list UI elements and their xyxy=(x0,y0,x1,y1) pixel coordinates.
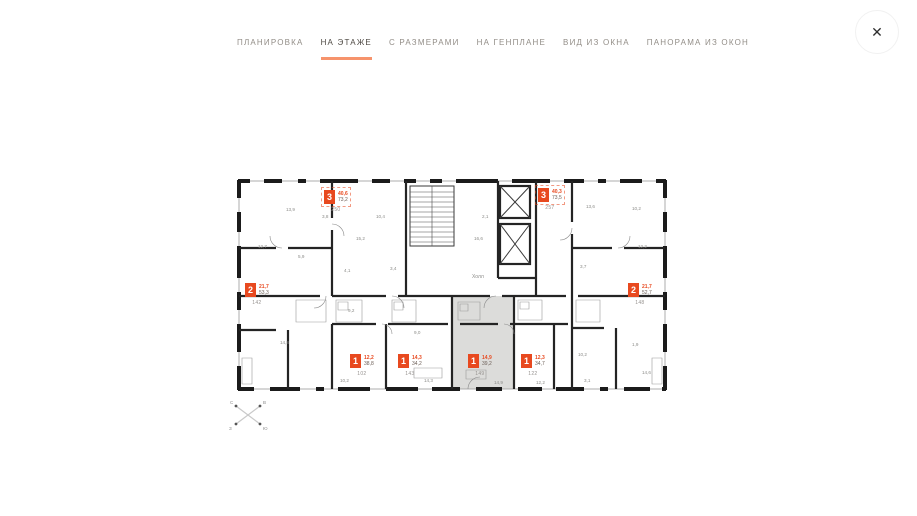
room-area-label: 9,2 xyxy=(348,308,355,313)
badge-room-count: 1 xyxy=(350,354,361,368)
badge-unit-number: 149 xyxy=(475,371,484,377)
badge-room-count: 2 xyxy=(245,283,256,297)
room-area-label: 10,4 xyxy=(376,214,385,219)
badge-unit-number: 122 xyxy=(528,371,537,377)
tab-planirovka[interactable]: ПЛАНИРОВКА xyxy=(237,38,304,60)
close-icon: ✕ xyxy=(871,24,883,41)
room-area-label: 12,2 xyxy=(536,380,545,385)
room-area-label: 4,1 xyxy=(344,268,351,273)
apartment-badge-250[interactable]: 340,673,2250 xyxy=(324,190,348,213)
apartment-badge-148[interactable]: 221,752,7148 xyxy=(628,283,652,306)
badge-rooms-and-areas: 114,334,2 xyxy=(398,354,422,368)
room-area-label: 15,2 xyxy=(356,236,365,241)
badge-area-total: 73,2 xyxy=(338,197,348,204)
floor-plan-drawing: Холл 13,93,812,75,915,24,110,43,416,62,1… xyxy=(236,178,668,392)
apartment-badge-142[interactable]: 221,753,3142 xyxy=(245,283,269,306)
badge-room-count: 1 xyxy=(468,354,479,368)
compass-south-label: Ю xyxy=(263,426,268,431)
room-area-label: 12,2 xyxy=(638,244,647,249)
tab-na-etazhe[interactable]: НА ЭТАЖЕ xyxy=(321,38,372,60)
room-area-label: 10,2 xyxy=(632,206,641,211)
apartment-badge-102[interactable]: 112,238,8102 xyxy=(350,354,374,377)
badge-rooms-and-areas: 221,752,7 xyxy=(628,283,652,297)
badge-area-total: 34,2 xyxy=(412,361,422,368)
floorplan-tabs: ПЛАНИРОВКАНА ЭТАЖЕС РАЗМЕРАМИНА ГЕНПЛАНЕ… xyxy=(237,38,749,60)
apartment-badge-143[interactable]: 114,334,2143 xyxy=(398,354,422,377)
badge-room-count: 3 xyxy=(538,188,549,202)
room-area-label: 14,8 xyxy=(280,340,289,345)
floor-plan: Холл 13,93,812,75,915,24,110,43,416,62,1… xyxy=(236,178,668,392)
room-area-label: 3,1 xyxy=(584,378,591,383)
room-area-label: 13,6 xyxy=(586,204,595,209)
badge-rooms-and-areas: 112,334,7 xyxy=(521,354,545,368)
badge-area-total: 34,7 xyxy=(535,361,545,368)
badge-rooms-and-areas: 340,673,2 xyxy=(324,190,348,204)
compass-icon: С В Ю З xyxy=(226,396,270,434)
room-area-label: 3,7 xyxy=(580,264,587,269)
close-button[interactable]: ✕ xyxy=(855,10,899,54)
badge-unit-number: 257 xyxy=(545,205,554,211)
badge-rooms-and-areas: 112,238,8 xyxy=(350,354,374,368)
badge-area-total: 39,2 xyxy=(482,361,492,368)
badge-unit-number: 250 xyxy=(331,207,340,213)
compass-north-label: С xyxy=(230,400,234,405)
room-area-label: 13,9 xyxy=(286,207,295,212)
room-area-label: 16,6 xyxy=(474,236,483,241)
hall-label: Холл xyxy=(472,274,484,280)
badge-area-total: 73,5 xyxy=(552,195,562,202)
badge-rooms-and-areas: 114,939,2 xyxy=(468,354,492,368)
room-area-label: 1,9 xyxy=(632,342,639,347)
room-area-label: 14,6 xyxy=(642,370,651,375)
badge-unit-number: 143 xyxy=(405,371,414,377)
tab-vid-iz-okna[interactable]: ВИД ИЗ ОКНА xyxy=(563,38,630,60)
tab-panorama-iz-okon[interactable]: ПАНОРАМА ИЗ ОКОН xyxy=(647,38,749,60)
apartment-badge-122[interactable]: 112,334,7122 xyxy=(521,354,545,377)
badge-room-count: 1 xyxy=(398,354,409,368)
room-area-label: 10,2 xyxy=(578,352,587,357)
badge-room-count: 3 xyxy=(324,190,335,204)
tab-s-razmerami[interactable]: С РАЗМЕРАМИ xyxy=(389,38,460,60)
apartment-badge-257[interactable]: 340,373,5257 xyxy=(538,188,562,211)
room-area-label: 10,2 xyxy=(340,378,349,383)
badge-unit-number: 142 xyxy=(252,300,261,306)
badge-unit-number: 148 xyxy=(635,300,644,306)
tab-na-genplane[interactable]: НА ГЕНПЛАНЕ xyxy=(477,38,546,60)
compass-west-label: З xyxy=(229,426,232,431)
compass-east-label: В xyxy=(263,400,266,405)
apartment-badge-149-selected[interactable]: 114,939,2149 xyxy=(468,354,492,377)
room-area-label: 12,7 xyxy=(258,244,267,249)
room-area-label: 14,9 xyxy=(494,380,503,385)
badge-room-count: 2 xyxy=(628,283,639,297)
room-area-label: 14,3 xyxy=(424,378,433,383)
badge-unit-number: 102 xyxy=(357,371,366,377)
badge-area-total: 52,7 xyxy=(642,290,652,297)
room-area-label: 5,9 xyxy=(298,254,305,259)
room-area-label: 9,0 xyxy=(414,330,421,335)
room-area-label: 3,4 xyxy=(390,266,397,271)
room-area-label: 3,8 xyxy=(322,214,329,219)
room-area-label: 2,1 xyxy=(482,214,489,219)
badge-room-count: 1 xyxy=(521,354,532,368)
badge-area-total: 53,3 xyxy=(259,290,269,297)
badge-rooms-and-areas: 221,753,3 xyxy=(245,283,269,297)
badge-area-total: 38,8 xyxy=(364,361,374,368)
badge-rooms-and-areas: 340,373,5 xyxy=(538,188,562,202)
